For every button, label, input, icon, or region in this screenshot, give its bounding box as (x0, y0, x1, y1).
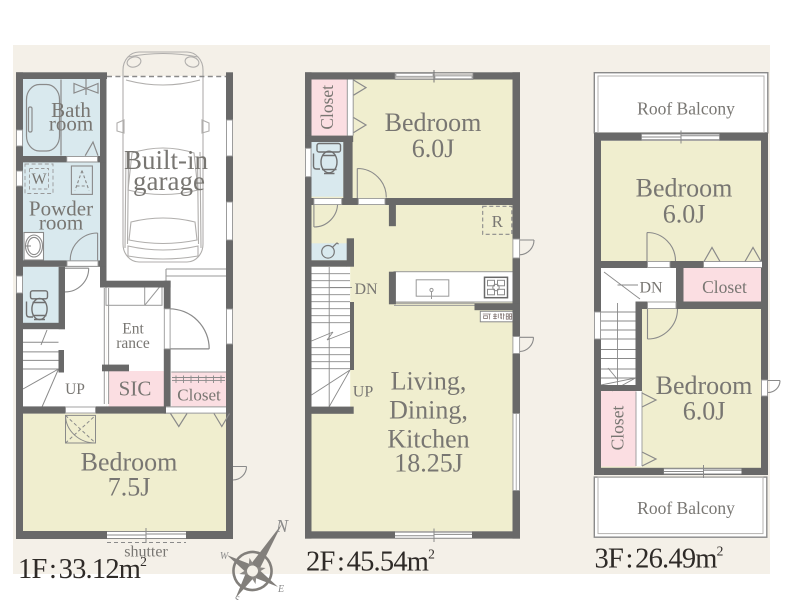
svg-text:7.5J: 7.5J (108, 473, 151, 502)
svg-text:garage: garage (133, 166, 205, 196)
svg-text:Bedroom: Bedroom (636, 174, 733, 203)
svg-text:E: E (277, 584, 284, 595)
svg-text:1F:33.12m2: 1F:33.12m2 (18, 554, 146, 585)
svg-text:Closet: Closet (317, 85, 337, 130)
svg-text:Roof Balcony: Roof Balcony (637, 498, 735, 518)
svg-text:DN: DN (639, 280, 663, 297)
svg-text:6.0J: 6.0J (412, 134, 455, 163)
svg-text:18.25J: 18.25J (394, 449, 463, 478)
svg-text:2F:45.54m2: 2F:45.54m2 (306, 547, 434, 578)
svg-text:Closet: Closet (177, 386, 221, 405)
svg-text:rance: rance (116, 335, 150, 352)
svg-text:6.0J: 6.0J (663, 200, 706, 229)
svg-text:Bedroom: Bedroom (385, 108, 482, 137)
svg-text:Dining,: Dining, (389, 396, 468, 425)
svg-text:room: room (39, 211, 83, 235)
svg-text:Closet: Closet (702, 277, 747, 297)
svg-text:room: room (49, 112, 93, 136)
svg-text:6.0J: 6.0J (683, 397, 726, 426)
svg-text:UP: UP (65, 381, 85, 398)
svg-text:W: W (31, 171, 47, 188)
svg-text:3F:26.49m2: 3F:26.49m2 (595, 544, 723, 575)
svg-text:N: N (275, 516, 289, 536)
svg-text:R: R (492, 212, 504, 231)
svg-text:SIC: SIC (119, 376, 152, 400)
svg-text:S: S (235, 595, 240, 600)
svg-text:Living,: Living, (391, 367, 467, 396)
svg-text:Roof Balcony: Roof Balcony (637, 99, 735, 119)
svg-text:UP: UP (353, 384, 374, 401)
svg-text:DN: DN (354, 281, 378, 298)
svg-text:Closet: Closet (608, 406, 628, 451)
